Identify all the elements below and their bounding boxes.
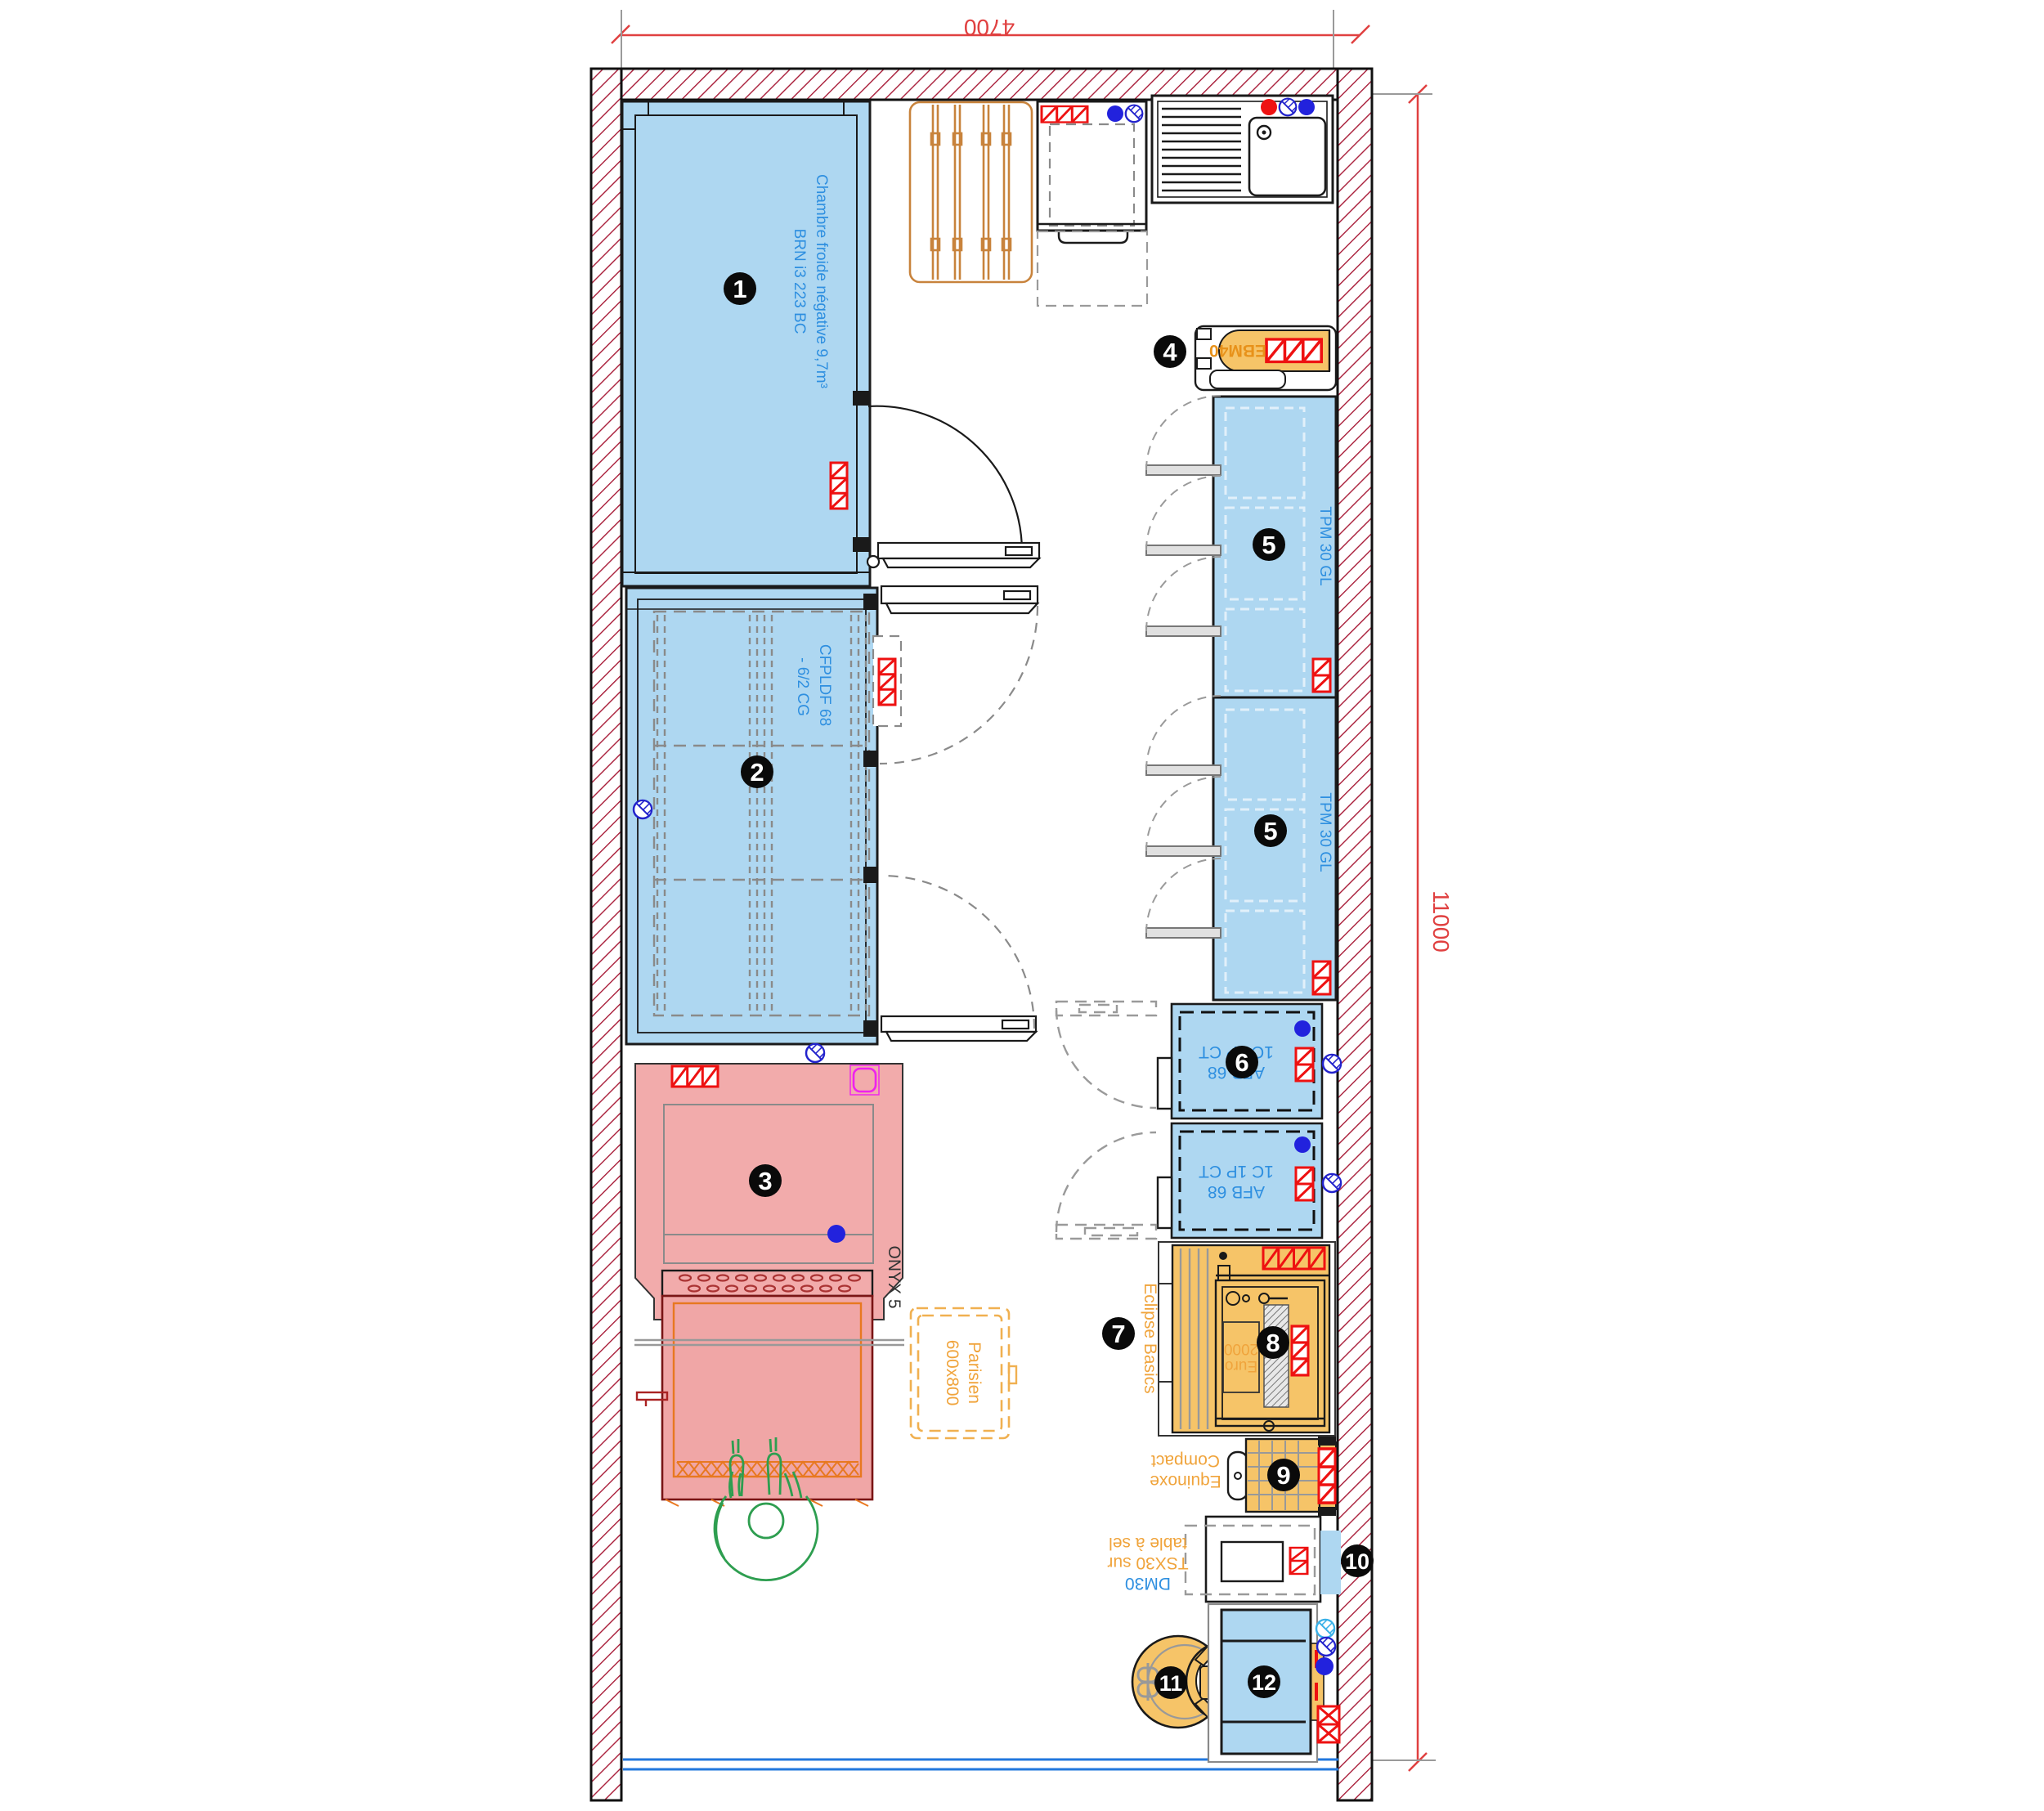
svg-text:DM30: DM30 (1125, 1574, 1171, 1593)
svg-text:600x800: 600x800 (943, 1340, 961, 1406)
svg-text:Equinoxe: Equinoxe (1150, 1472, 1221, 1490)
svg-text:1C 1P CT: 1C 1P CT (1199, 1162, 1274, 1181)
svg-text:12: 12 (1252, 1670, 1276, 1695)
svg-text:TPM 30 GL: TPM 30 GL (1316, 506, 1334, 585)
svg-text:Chambre froide négative 9,7m³: Chambre froide négative 9,7m³ (813, 174, 830, 388)
svg-text:2000: 2000 (1224, 1340, 1258, 1357)
svg-text:11000: 11000 (1428, 890, 1454, 953)
svg-text:Euro: Euro (1225, 1357, 1257, 1374)
svg-text:8: 8 (1266, 1329, 1280, 1357)
svg-text:10: 10 (1345, 1549, 1369, 1574)
svg-text:- 6/2 CG: - 6/2 CG (794, 657, 811, 716)
svg-text:AFB 68: AFB 68 (1208, 1182, 1265, 1201)
svg-text:Eclipse Basics: Eclipse Basics (1141, 1283, 1159, 1393)
svg-text:4700: 4700 (964, 15, 1015, 40)
svg-text:BRN i3 223 BC: BRN i3 223 BC (791, 229, 808, 334)
svg-text:ONYX 5: ONYX 5 (885, 1245, 903, 1308)
svg-text:2: 2 (750, 758, 764, 787)
svg-text:1: 1 (733, 275, 746, 303)
svg-text:TPM 30 GL: TPM 30 GL (1316, 792, 1334, 872)
svg-text:3: 3 (758, 1167, 772, 1195)
svg-text:7: 7 (1111, 1320, 1125, 1348)
svg-text:Parisien: Parisien (965, 1342, 984, 1404)
svg-text:11: 11 (1159, 1671, 1183, 1696)
svg-text:EBM40: EBM40 (1209, 341, 1266, 360)
svg-text:4: 4 (1163, 338, 1177, 366)
svg-text:5: 5 (1263, 817, 1277, 845)
svg-text:table à sel: table à sel (1109, 1534, 1187, 1553)
svg-text:Compact: Compact (1151, 1451, 1220, 1470)
svg-text:9: 9 (1276, 1461, 1290, 1490)
svg-text:TSX30 sur: TSX30 sur (1107, 1553, 1188, 1572)
svg-text:CFPLDF 68: CFPLDF 68 (816, 644, 833, 726)
svg-text:5: 5 (1262, 531, 1275, 559)
svg-text:6: 6 (1235, 1048, 1248, 1077)
